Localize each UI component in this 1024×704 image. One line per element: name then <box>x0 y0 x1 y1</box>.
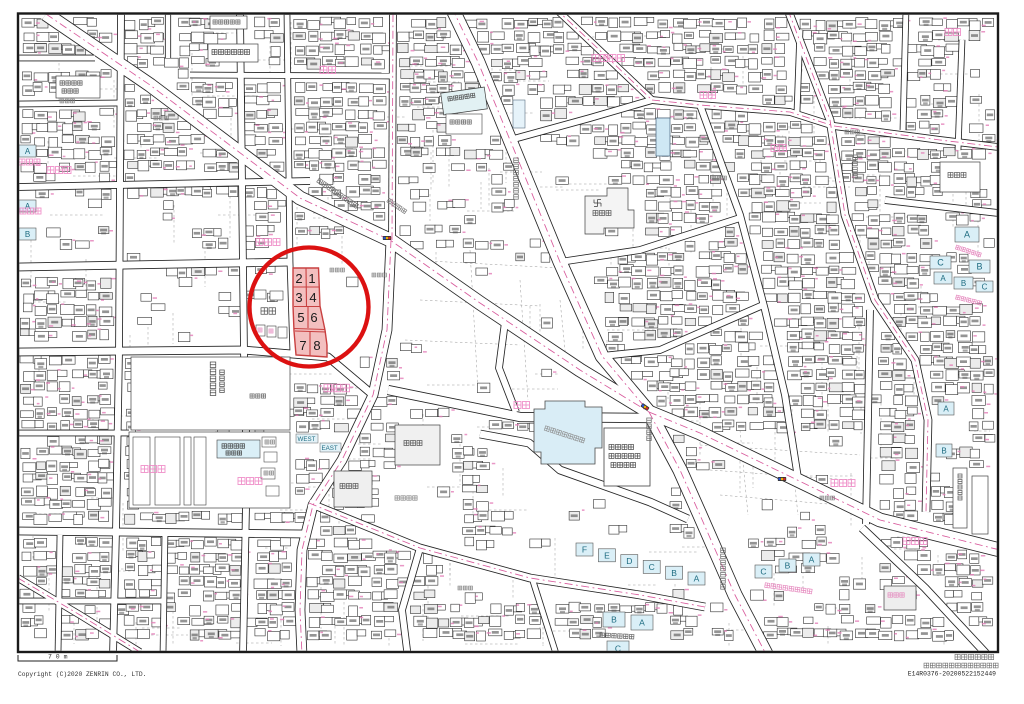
svg-text:7: 7 <box>299 338 306 353</box>
svg-text:B: B <box>941 446 946 455</box>
svg-text:A: A <box>694 574 700 584</box>
svg-text:1: 1 <box>308 271 315 286</box>
svg-text:C: C <box>982 282 988 291</box>
svg-text:8: 8 <box>313 338 320 353</box>
svg-text:B: B <box>671 568 677 578</box>
svg-text:A: A <box>943 404 949 413</box>
svg-text:A: A <box>940 274 946 283</box>
svg-text:A: A <box>25 147 31 156</box>
svg-text:A: A <box>639 618 645 628</box>
svg-text:3: 3 <box>295 290 302 305</box>
svg-text:7 0 m: 7 0 m <box>48 654 68 661</box>
svg-text:6: 6 <box>310 310 317 325</box>
svg-text:C: C <box>649 562 655 572</box>
svg-text:B: B <box>611 615 617 625</box>
svg-text:E: E <box>604 550 610 560</box>
svg-text:A: A <box>809 555 815 565</box>
svg-text:E14R0376-20200522152449: E14R0376-20200522152449 <box>908 671 996 678</box>
svg-text:D: D <box>626 556 632 566</box>
svg-text:B: B <box>961 279 966 288</box>
svg-text:2: 2 <box>295 271 302 286</box>
svg-text:B: B <box>976 262 982 272</box>
svg-text:B: B <box>25 230 30 239</box>
svg-text:C: C <box>937 258 944 268</box>
svg-text:5: 5 <box>297 310 304 325</box>
svg-text:B: B <box>785 561 791 571</box>
svg-text:Copyright (C)2020 ZENRIN CO.,: Copyright (C)2020 ZENRIN CO., LTD. <box>18 671 146 678</box>
svg-text:WEST: WEST <box>298 436 316 443</box>
svg-text:4: 4 <box>309 290 316 305</box>
svg-text:EAST: EAST <box>322 445 338 452</box>
svg-text:C: C <box>760 567 766 577</box>
svg-text:F: F <box>582 545 587 555</box>
svg-text:A: A <box>964 230 970 240</box>
